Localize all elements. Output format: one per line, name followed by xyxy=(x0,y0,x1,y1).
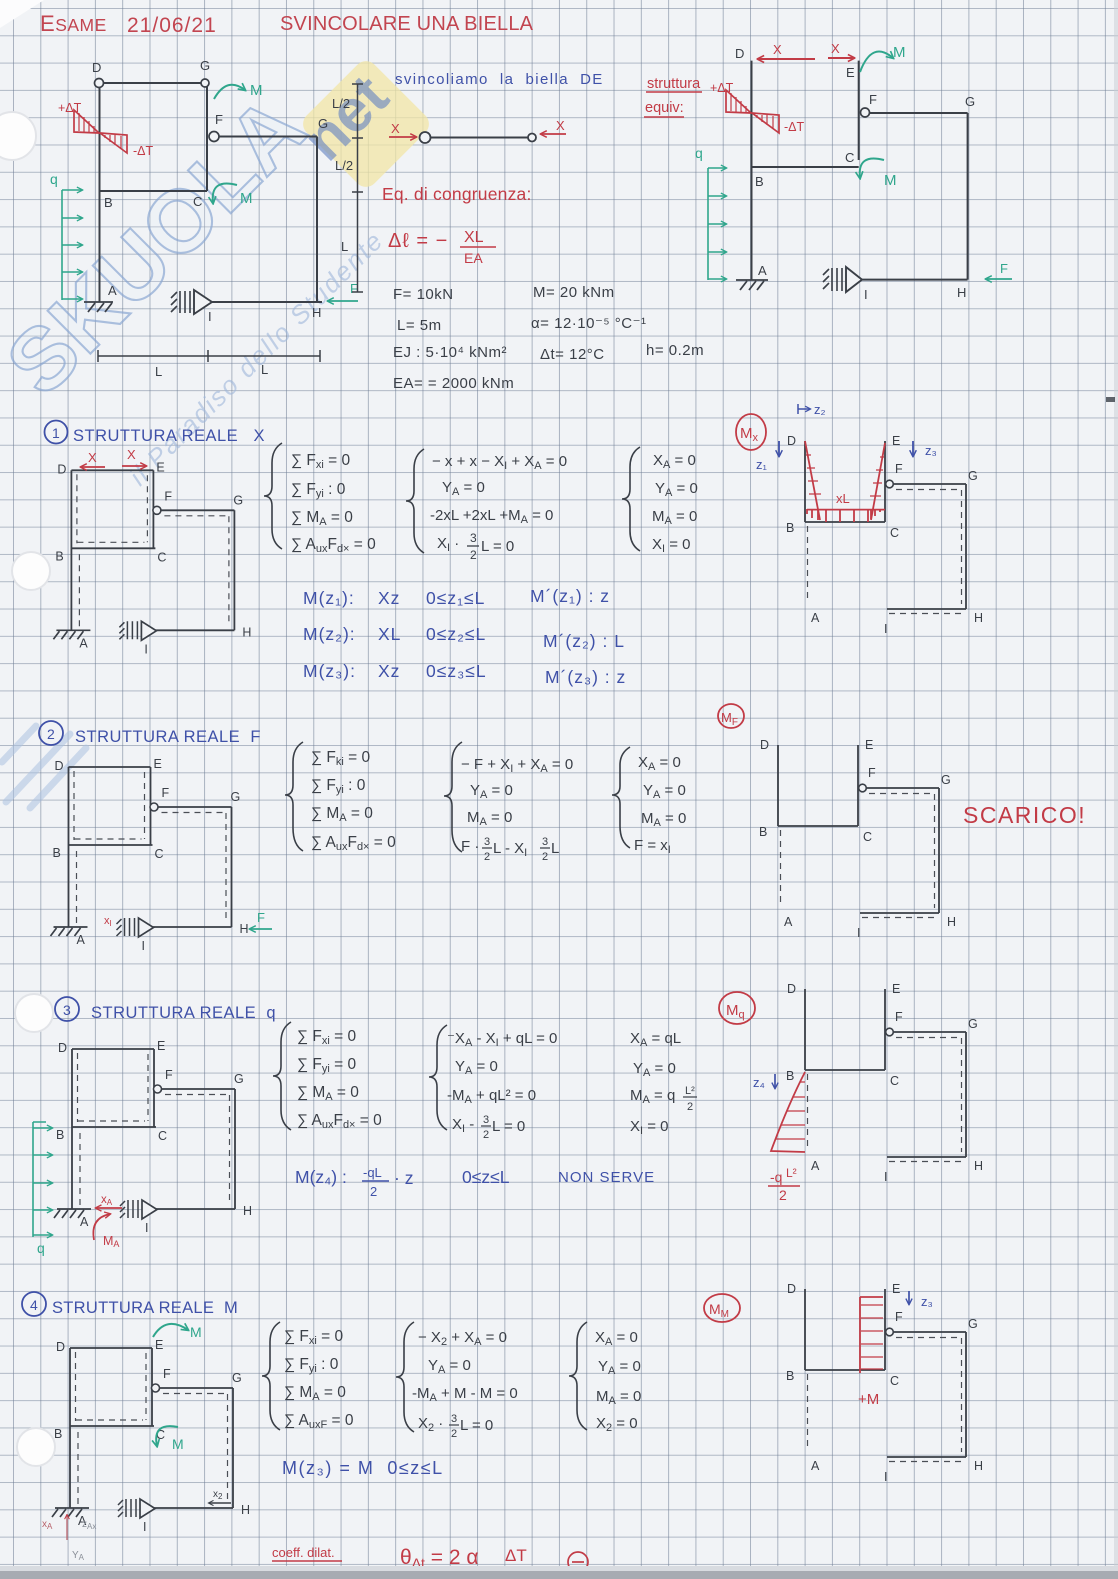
svg-text:2: 2 xyxy=(47,726,55,742)
svg-text:YA = 0: YA = 0 xyxy=(598,1358,641,1377)
svg-text:X: X xyxy=(391,121,400,136)
svg-text:M(z₃):: M(z₃): xyxy=(303,661,356,681)
svg-text:D: D xyxy=(92,60,101,75)
svg-text:ESAME: ESAME xyxy=(40,11,107,36)
svg-text:equiv:: equiv: xyxy=(645,100,684,116)
svg-text:ΔT: ΔT xyxy=(505,1546,527,1565)
svg-text:MA: MA xyxy=(103,1234,119,1249)
svg-text:M´(z₃) : z: M´(z₃) : z xyxy=(545,667,626,687)
svg-text:MM: MM xyxy=(709,1301,729,1320)
svg-text:∑ MA = 0: ∑ MA = 0 xyxy=(284,1384,346,1403)
svg-text:SKUOLA: SKUOLA xyxy=(0,76,324,413)
svg-text:2: 2 xyxy=(484,851,490,863)
svg-text:∑ AuxFd× = 0: ∑ AuxFd× = 0 xyxy=(311,834,396,853)
svg-text:X: X xyxy=(556,118,565,133)
svg-text:G: G xyxy=(965,94,975,109)
svg-text:L: L xyxy=(261,362,268,377)
svg-text:21/06/21: 21/06/21 xyxy=(127,14,217,37)
svg-text:XA = 0: XA = 0 xyxy=(595,1329,638,1348)
svg-text:3: 3 xyxy=(484,836,490,848)
svg-text:q: q xyxy=(50,171,58,187)
svg-text:∑ Fxi = 0: ∑ Fxi = 0 xyxy=(284,1328,343,1347)
svg-text:∑ Fxi = 0: ∑ Fxi = 0 xyxy=(297,1028,356,1047)
svg-text:x2: x2 xyxy=(213,1489,223,1501)
svg-text:STRUTTURA REALE q: STRUTTURA REALE q xyxy=(91,1004,276,1022)
svg-text:F = xI: F = xI xyxy=(634,837,671,856)
svg-text:coeff. dilat.: coeff. dilat. xyxy=(272,1545,335,1560)
svg-text:EA: EA xyxy=(464,250,483,266)
svg-text:F= 10kN: F= 10kN xyxy=(393,286,454,303)
svg-text:M: M xyxy=(250,82,263,99)
svg-text:-MA + M - M = 0: -MA + M - M = 0 xyxy=(412,1385,518,1404)
svg-text:XI = 0: XI = 0 xyxy=(652,536,691,555)
svg-text:2: 2 xyxy=(370,1184,377,1199)
svg-text:Mq: Mq xyxy=(726,1002,745,1021)
svg-text:4: 4 xyxy=(30,1297,38,1313)
svg-text:L = 0: L = 0 xyxy=(460,1417,493,1434)
svg-text:− X2 + XA = 0: − X2 + XA = 0 xyxy=(418,1329,507,1348)
svg-text:X2 ·: X2 · xyxy=(418,1415,443,1434)
svg-text:A: A xyxy=(758,263,767,278)
svg-text:Xz: Xz xyxy=(378,661,400,681)
svg-text:E: E xyxy=(846,65,855,80)
svg-text:svincoliamo la biella DE: svincoliamo la biella DE xyxy=(395,71,604,88)
svg-text:xL: xL xyxy=(836,491,850,506)
svg-text:2: 2 xyxy=(483,1129,489,1141)
svg-text:L = 0: L = 0 xyxy=(481,538,514,555)
svg-text:H: H xyxy=(312,305,321,320)
svg-text:Xz: Xz xyxy=(378,588,400,608)
svg-text:X2 = 0: X2 = 0 xyxy=(596,1415,638,1434)
svg-text:2: 2 xyxy=(542,851,548,863)
svg-text:YA = 0: YA = 0 xyxy=(470,782,513,801)
svg-text:EA= = 2000 kNm: EA= = 2000 kNm xyxy=(393,375,514,392)
svg-text:MA = 0: MA = 0 xyxy=(652,508,697,527)
svg-text:3: 3 xyxy=(542,836,548,848)
svg-text:L: L xyxy=(551,840,559,857)
svg-text:∑ MA = 0: ∑ MA = 0 xyxy=(297,1084,359,1103)
svg-text:L: L xyxy=(341,239,348,254)
svg-text:XI -: XI - xyxy=(452,1116,474,1135)
svg-text:-q: -q xyxy=(770,1169,782,1185)
svg-text:-qL: -qL xyxy=(363,1165,382,1180)
svg-text:z₂: z₂ xyxy=(814,402,826,417)
svg-text:⁻XA - XI + qL = 0: ⁻XA - XI + qL = 0 xyxy=(447,1030,557,1049)
svg-text:3: 3 xyxy=(451,1413,457,1425)
svg-text:MA = q: MA = q xyxy=(630,1087,675,1106)
svg-text:3: 3 xyxy=(483,1114,489,1126)
svg-text:-ΔT: -ΔT xyxy=(133,144,154,158)
svg-text:M(z₂):: M(z₂): xyxy=(303,624,356,644)
svg-text:1: 1 xyxy=(52,425,60,441)
svg-text:Eq. di congruenza:: Eq. di congruenza: xyxy=(382,184,532,204)
svg-text:M= 20 kNm: M= 20 kNm xyxy=(533,284,615,301)
svg-text:SCARICO!: SCARICO! xyxy=(963,802,1086,828)
svg-text:H: H xyxy=(957,285,966,300)
svg-text:Mx: Mx xyxy=(740,425,759,444)
svg-text:STRUTTURA REALE F: STRUTTURA REALE F xyxy=(75,728,261,746)
svg-text:YA = 0: YA = 0 xyxy=(643,782,686,801)
svg-text:-MA + qL² = 0: -MA + qL² = 0 xyxy=(447,1087,536,1106)
svg-text:Δℓ = −: Δℓ = − xyxy=(388,230,448,252)
svg-text:M: M xyxy=(190,1324,202,1340)
svg-text:L/2: L/2 xyxy=(335,158,353,173)
svg-text:∑ Fyi : 0: ∑ Fyi : 0 xyxy=(284,1356,339,1375)
svg-text:∑ Fyi : 0: ∑ Fyi : 0 xyxy=(311,777,366,796)
svg-text:3: 3 xyxy=(470,531,477,545)
svg-text:STRUTTURA REALE X: STRUTTURA REALE X xyxy=(73,427,265,445)
svg-text:2: 2 xyxy=(451,1428,457,1440)
svg-text:M: M xyxy=(172,1436,184,1452)
svg-text:− F + XI + XA = 0: − F + XI + XA = 0 xyxy=(461,756,573,775)
svg-text:F: F xyxy=(257,910,265,925)
svg-text:YA = 0: YA = 0 xyxy=(655,480,698,499)
svg-text:G: G xyxy=(318,116,328,131)
svg-text:M(z₁):: M(z₁): xyxy=(303,588,355,608)
svg-text:EJ : 5·10⁴ kNm²: EJ : 5·10⁴ kNm² xyxy=(393,344,507,361)
svg-text:M´(z₂) : L: M´(z₂) : L xyxy=(543,631,625,651)
svg-text:G: G xyxy=(200,58,210,73)
svg-text:L: L xyxy=(155,364,162,379)
svg-text:zAx: zAx xyxy=(82,1519,96,1531)
svg-text:2: 2 xyxy=(779,1187,787,1203)
svg-text:z₄: z₄ xyxy=(753,1075,765,1090)
svg-text:h= 0.2m: h= 0.2m xyxy=(646,342,704,359)
svg-text:XA = 0: XA = 0 xyxy=(653,452,696,471)
svg-text:XA = qL: XA = qL xyxy=(630,1030,681,1049)
svg-text:0≤z₂≤L: 0≤z₂≤L xyxy=(426,624,486,644)
svg-text:+M: +M xyxy=(858,1391,879,1408)
svg-text:M(z₄) :: M(z₄) : xyxy=(295,1167,347,1187)
svg-text:XL: XL xyxy=(464,229,484,246)
svg-text:YA = 0: YA = 0 xyxy=(428,1357,471,1376)
svg-text:xA: xA xyxy=(101,1194,113,1207)
svg-text:B: B xyxy=(104,195,113,210)
svg-text:X: X xyxy=(773,42,782,57)
svg-text:X: X xyxy=(831,41,840,56)
svg-text:q: q xyxy=(695,145,703,161)
svg-text:F: F xyxy=(215,112,223,127)
svg-text:xI: xI xyxy=(104,915,112,928)
svg-text:0≤z₁≤L: 0≤z₁≤L xyxy=(426,588,485,608)
svg-text:∑ MA = 0: ∑ MA = 0 xyxy=(311,805,373,824)
svg-text:L - XI: L - XI xyxy=(493,840,527,859)
svg-text:YA: YA xyxy=(72,1550,85,1562)
svg-text:XI = 0: XI = 0 xyxy=(630,1118,669,1137)
svg-text:XI ·: XI · xyxy=(437,535,459,554)
svg-text:M: M xyxy=(240,190,253,207)
svg-text:-ΔT: -ΔT xyxy=(784,120,805,134)
svg-text:3: 3 xyxy=(63,1002,71,1018)
svg-text:∑ Fxi = 0: ∑ Fxi = 0 xyxy=(291,452,350,471)
svg-text:YA = 0: YA = 0 xyxy=(633,1060,676,1079)
svg-text:C: C xyxy=(193,194,202,209)
svg-text:+ΔT: +ΔT xyxy=(710,81,734,95)
svg-text:NON SERVE: NON SERVE xyxy=(558,1169,655,1186)
svg-text:2: 2 xyxy=(470,548,477,562)
svg-text:X: X xyxy=(88,450,97,465)
svg-text:2: 2 xyxy=(687,1101,693,1113)
svg-text:YA = 0: YA = 0 xyxy=(442,479,485,498)
svg-text:∑ AuxF = 0: ∑ AuxF = 0 xyxy=(284,1412,354,1431)
svg-text:X: X xyxy=(127,447,136,462)
svg-text:I: I xyxy=(208,309,212,324)
svg-text:∑ MA = 0: ∑ MA = 0 xyxy=(291,509,353,528)
svg-text:L²: L² xyxy=(685,1085,695,1097)
svg-text:∑ AuxFd× = 0: ∑ AuxFd× = 0 xyxy=(291,536,376,555)
svg-text:z₁: z₁ xyxy=(756,457,768,472)
svg-text:F: F xyxy=(869,92,877,107)
svg-text:∑ Fyi = 0: ∑ Fyi = 0 xyxy=(297,1056,356,1075)
svg-text:xA: xA xyxy=(42,1519,53,1531)
svg-text:XA = 0: XA = 0 xyxy=(638,754,681,773)
svg-text:STRUTTURA REALE M: STRUTTURA REALE M xyxy=(52,1299,238,1317)
svg-text:L/2: L/2 xyxy=(332,96,350,111)
svg-text:Δt= 12°C: Δt= 12°C xyxy=(540,346,605,363)
svg-text:C: C xyxy=(845,150,854,165)
svg-text:∑ Fki = 0: ∑ Fki = 0 xyxy=(311,749,370,768)
svg-text:∑ AuxFd× = 0: ∑ AuxFd× = 0 xyxy=(297,1112,382,1131)
svg-text:∑ Fyi : 0: ∑ Fyi : 0 xyxy=(291,481,346,500)
svg-text:z₃: z₃ xyxy=(925,443,937,458)
svg-text:XL: XL xyxy=(378,624,401,644)
svg-text:M: M xyxy=(893,44,906,61)
svg-text:· z: · z xyxy=(394,1168,413,1188)
svg-text:MA = 0: MA = 0 xyxy=(641,810,686,829)
svg-text:− x + x − XI + XA = 0: − x + x − XI + XA = 0 xyxy=(432,453,567,472)
svg-text:MA = 0: MA = 0 xyxy=(596,1388,641,1407)
svg-text:I: I xyxy=(864,287,868,302)
svg-text:struttura: struttura xyxy=(647,76,701,92)
svg-text:0≤z≤L: 0≤z≤L xyxy=(462,1167,510,1187)
svg-text:0≤z₃≤L: 0≤z₃≤L xyxy=(426,661,487,681)
svg-text:L= 5m: L= 5m xyxy=(397,317,442,334)
svg-text:F: F xyxy=(1000,261,1008,276)
svg-text:z₃: z₃ xyxy=(921,1294,933,1309)
svg-text:M´(z₁) : z: M´(z₁) : z xyxy=(530,586,610,606)
svg-text:α= 12·10⁻⁵ °C⁻¹: α= 12·10⁻⁵ °C⁻¹ xyxy=(531,315,647,332)
svg-text:F ·: F · xyxy=(461,838,479,855)
svg-text:MA = 0: MA = 0 xyxy=(467,809,512,828)
svg-text:-2xL +2xL +MA = 0: -2xL +2xL +MA = 0 xyxy=(430,507,553,526)
svg-text:M: M xyxy=(884,172,897,189)
svg-text:D: D xyxy=(735,46,744,61)
svg-text:L = 0: L = 0 xyxy=(492,1118,525,1135)
svg-text:SVINCOLARE UNA BIELLA: SVINCOLARE UNA BIELLA xyxy=(280,13,534,35)
svg-text:A: A xyxy=(108,283,117,298)
svg-text:YA = 0: YA = 0 xyxy=(455,1058,498,1077)
svg-text:L²: L² xyxy=(786,1166,797,1180)
svg-text:B: B xyxy=(755,174,764,189)
svg-text:M(z₃) = M 0≤z≤L: M(z₃) = M 0≤z≤L xyxy=(282,1458,444,1478)
svg-text:+ΔT: +ΔT xyxy=(58,101,82,115)
svg-text:q: q xyxy=(37,1240,45,1256)
